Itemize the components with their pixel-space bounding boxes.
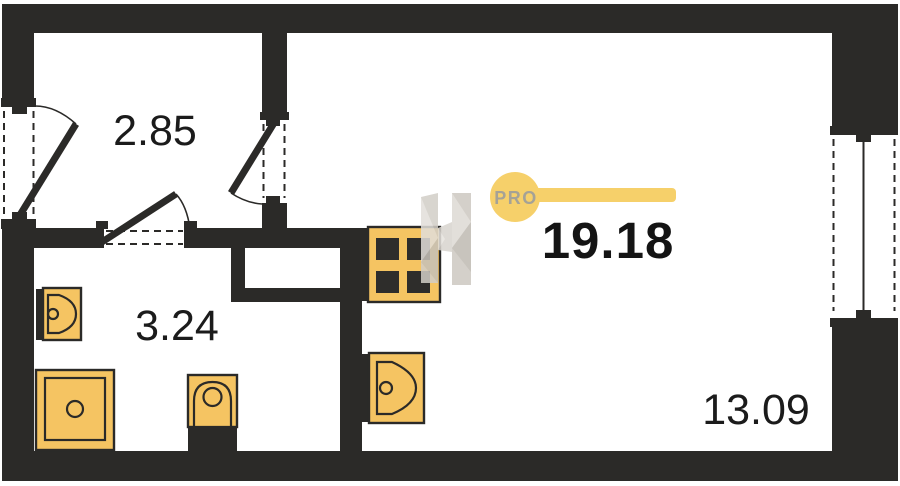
developer-watermark-icon [421,193,471,285]
wall-cap [830,126,898,135]
living-room-area-label: 13.09 [702,386,810,434]
badge-label: PRO [494,188,538,208]
door-swing-arc [35,106,76,124]
toilet-icon [188,375,237,451]
fixture-body [36,370,114,450]
cistern [188,427,237,451]
entrance-door [4,106,76,215]
door-hinge-nub [12,106,27,114]
door-leaf [20,124,76,215]
wall-segment [340,248,362,451]
bathroom-door [102,194,190,244]
fixture-back [361,354,369,422]
wall-cap [1,98,36,107]
window [834,139,895,312]
wall-segment [262,33,287,113]
wall-cap [1,219,36,229]
hallway-door [231,123,285,204]
badge-bar [524,188,676,202]
floor-plan: PRO 2.85 3.24 13.09 19.18 [0,0,900,486]
wall-segment [2,4,898,33]
wall-segment [832,327,898,451]
burner [376,238,399,260]
bathroom-area-label: 3.24 [135,302,219,350]
wall-cap [830,318,898,327]
burner [376,271,399,293]
total-area-label: 19.18 [542,212,675,269]
bathroom-sink-icon [36,288,81,340]
wall-segment [2,222,34,451]
wall-segment [2,451,898,481]
shower-icon [36,370,114,450]
hallway-area-label: 2.85 [113,107,197,155]
door-leaf [231,123,274,193]
wall-segment [832,33,898,127]
door-swing-arc [231,193,262,204]
door-leaf [102,194,176,242]
door-hinge-nub [96,221,108,229]
door-jamb [184,228,197,248]
wall-segment [2,228,95,248]
kitchen-sink-icon [361,353,424,423]
wall-segment [197,228,362,248]
door-hinge-nub [266,196,280,204]
wall-segment [262,203,287,229]
wall-segment [2,4,34,99]
window-nub [856,134,871,142]
wall-cap [260,112,289,120]
